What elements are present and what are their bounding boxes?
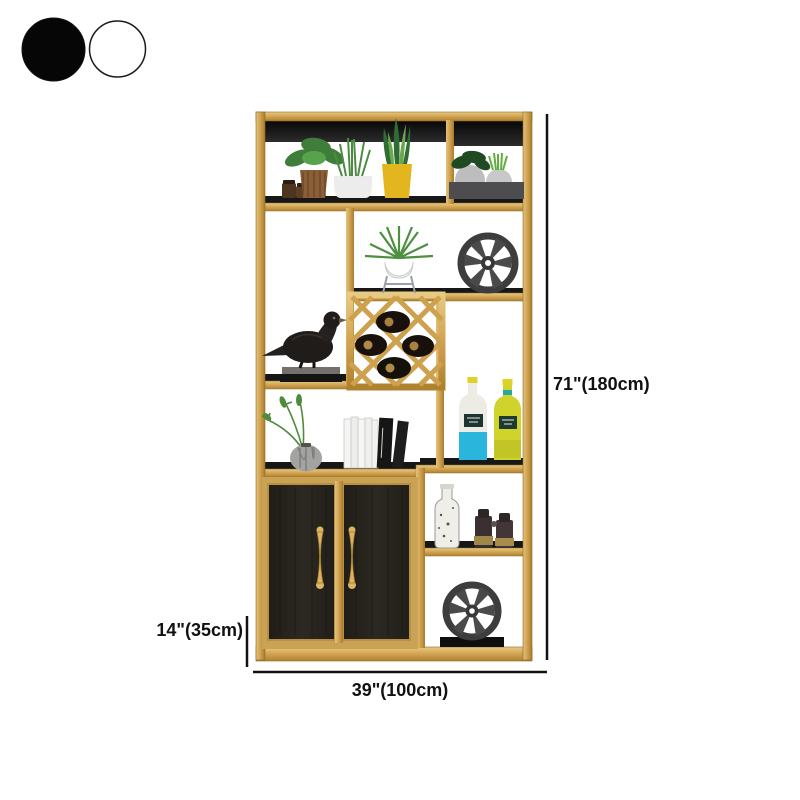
wagon-wheel-bottom — [440, 585, 504, 647]
wine-rack — [350, 295, 442, 387]
cabinet-door-left[interactable] — [268, 484, 335, 640]
base-height-dimension-label: 14"(35cm) — [143, 620, 243, 641]
shelf-unit — [256, 112, 532, 661]
fern-sprigs-gray-vase — [261, 394, 322, 472]
cabinet-door-right[interactable] — [343, 484, 410, 640]
width-dimension-label: 39"(100cm) — [300, 680, 500, 701]
planter-box-two-pots — [449, 149, 524, 199]
cyan-bottle — [459, 377, 487, 460]
wagon-wheel-top — [461, 236, 515, 290]
book-stack — [344, 417, 409, 469]
height-dimension-label: 71"(180cm) — [553, 374, 650, 395]
speckled-ceramic-bottle — [435, 484, 459, 548]
top-right-shelf-shadow — [448, 120, 524, 146]
yellow-bottle — [494, 379, 521, 460]
air-plant-on-stand — [365, 226, 433, 293]
cabinet — [262, 477, 418, 649]
bird-figurine-on-books — [262, 312, 347, 383]
grass-plant-white-pot — [334, 138, 372, 198]
